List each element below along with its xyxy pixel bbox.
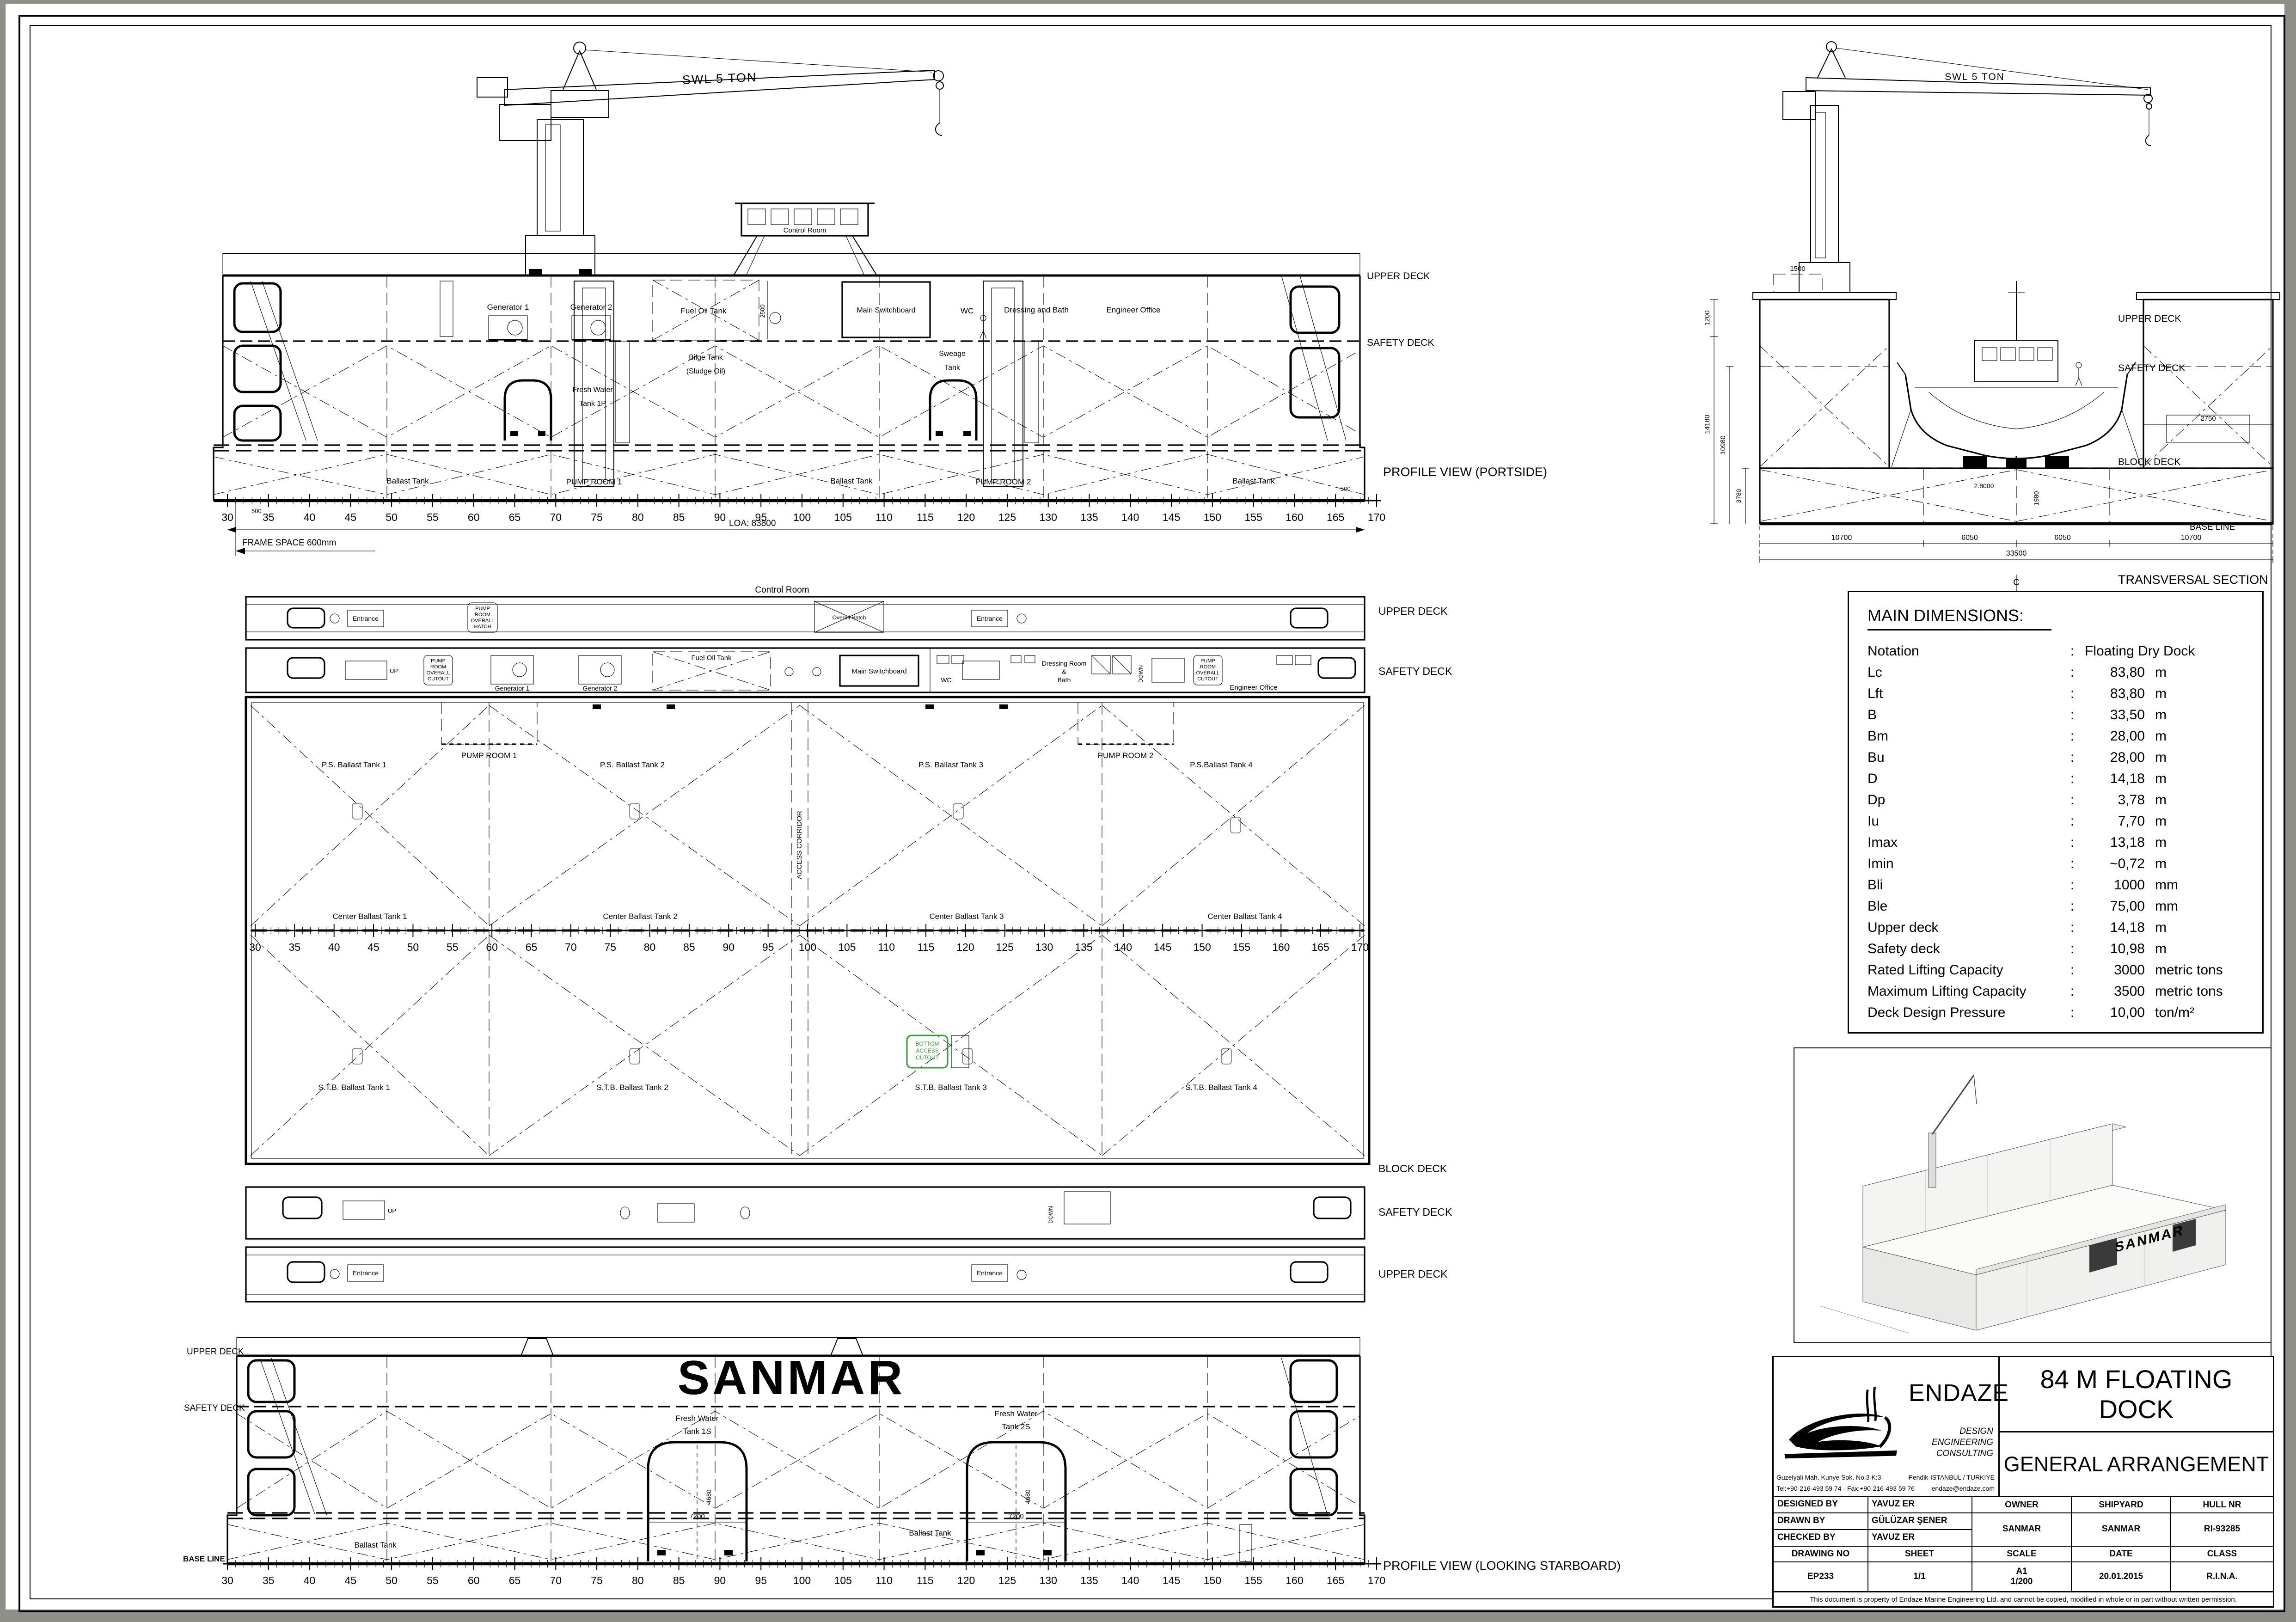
upper-deck-strip-bottom xyxy=(246,1247,1365,1302)
plan-safety-deck-top-label: SAFETY DECK xyxy=(1378,665,1452,677)
svg-text:165: 165 xyxy=(1311,941,1329,953)
svg-text:30: 30 xyxy=(221,511,233,523)
sweage-tank-label-1: Sweage xyxy=(939,350,966,358)
company-name: ENDAZE xyxy=(1909,1379,1996,1407)
svg-text:80: 80 xyxy=(632,511,644,523)
dim-33500: 33500 xyxy=(2006,550,2027,557)
svg-text:125: 125 xyxy=(998,1574,1016,1586)
class-value: R.I.N.A. xyxy=(2171,1562,2273,1591)
dimension-row: Dp:3,78m xyxy=(1867,790,2244,811)
svg-text:150: 150 xyxy=(1204,511,1221,523)
svg-text:45: 45 xyxy=(367,941,380,953)
control-room-house xyxy=(734,203,877,275)
svg-text:50: 50 xyxy=(386,1574,398,1586)
generator-icons xyxy=(489,316,611,340)
owner-header: OWNER xyxy=(1972,1497,2071,1512)
section-crane-swl-label: SWL 5 TON xyxy=(1945,72,2005,82)
drawing-sheet: SWL 5 TON Control Room Generator 1 Gener… xyxy=(6,4,2284,1610)
svg-text:170: 170 xyxy=(1368,1574,1385,1586)
starboard-frame-ruler: 3035404550556065707580859095100105110115… xyxy=(221,1557,1385,1586)
center-tank-3-label: Center Ballast Tank 3 xyxy=(929,912,1004,921)
drawing-title: GENERAL ARRANGEMENT xyxy=(2000,1432,2273,1496)
hull-outline xyxy=(214,253,1365,501)
sweage-tank-label-2: Tank xyxy=(944,364,961,372)
dimension-row: Iu:7,70m xyxy=(1867,811,2244,832)
up-label-2: UP xyxy=(388,1207,396,1214)
dim-4680-2: 4680 xyxy=(1024,1489,1031,1504)
plan-main-switchboard-label: Main Switchboard xyxy=(851,667,906,675)
drawing-no-header: DRAWING NO xyxy=(1774,1547,1867,1561)
ballast-tank-label-2: Ballast Tank xyxy=(830,477,873,485)
main-dimensions-rows: Notation:Floating Dry DockLc:83,80mLft:8… xyxy=(1867,641,2244,1023)
svg-text:165: 165 xyxy=(1327,1574,1344,1586)
svg-text:170: 170 xyxy=(1368,511,1385,523)
svg-text:55: 55 xyxy=(447,941,459,953)
svg-text:CUTOUT: CUTOUT xyxy=(1197,676,1218,682)
ps-tank-1-label: P.S. Ballast Tank 1 xyxy=(322,760,386,769)
entrance-label-1: Entrance xyxy=(353,615,379,622)
center-tank-2-label: Center Ballast Tank 2 xyxy=(603,912,677,921)
address-line-4: endaze@endaze.com xyxy=(1889,1485,1995,1492)
loa-label: LOA: 83800 xyxy=(729,519,776,528)
svg-text:155: 155 xyxy=(1233,941,1250,953)
svg-text:140: 140 xyxy=(1121,511,1139,523)
main-dimensions-title: MAIN DIMENSIONS: xyxy=(1867,606,2051,630)
svg-text:130: 130 xyxy=(1035,941,1053,953)
svg-text:135: 135 xyxy=(1080,1574,1098,1586)
date-header: DATE xyxy=(2072,1547,2170,1561)
svg-text:40: 40 xyxy=(328,941,340,953)
centerline-symbol-c: C xyxy=(2013,578,2020,588)
sanmar-brand-text: SANMAR xyxy=(678,1351,905,1405)
svg-text:65: 65 xyxy=(526,941,538,953)
bilge-tank-label-2: (Sludge Oil) xyxy=(686,367,725,375)
svg-text:60: 60 xyxy=(468,1574,480,1586)
starboard-base-line-label: BASE LINE xyxy=(183,1555,225,1563)
dimension-row: Imax:13,18m xyxy=(1867,832,2244,853)
entrance-label-2: Entrance xyxy=(977,615,1003,622)
svg-text:170: 170 xyxy=(1351,941,1369,953)
sheet-value: 1/1 xyxy=(1867,1562,1971,1591)
address-line-3: Pendik-ISTANBUL / TURKIYE xyxy=(1889,1474,1995,1481)
ballast-tank-label-3: Ballast Tank xyxy=(1232,477,1275,485)
svg-text:100: 100 xyxy=(793,511,811,523)
profile-portside-view: SWL 5 TON Control Room Generator 1 Gener… xyxy=(181,22,1522,577)
svg-text:120: 120 xyxy=(956,941,974,953)
dimension-row: Maximum Lifting Capacity:3500metric tons xyxy=(1867,981,2244,1002)
scale-header: SCALE xyxy=(1972,1547,2071,1561)
dimension-row: Deck Design Pressure:10,00ton/m² xyxy=(1867,1002,2244,1023)
svg-text:CUTOUT: CUTOUT xyxy=(428,676,449,682)
svg-text:150: 150 xyxy=(1204,1574,1221,1586)
stb-tank-4-label: S.T.B. Ballast Tank 4 xyxy=(1185,1083,1257,1092)
svg-text:65: 65 xyxy=(509,1574,521,1586)
dim-10700-right: 10700 xyxy=(2181,534,2202,542)
drawing-no-value: EP233 xyxy=(1774,1562,1867,1591)
stb-tank-2-label: S.T.B. Ballast Tank 2 xyxy=(596,1083,668,1092)
dressing-bath-label: Dressing and Bath xyxy=(1004,306,1069,314)
fresh-water-1p-label-2: Tank 1P xyxy=(579,400,606,408)
svg-text:160: 160 xyxy=(1286,511,1303,523)
entrance-label-4: Entrance xyxy=(977,1269,1003,1277)
dim-2800: 2.8000 xyxy=(1974,482,1994,490)
upper-deck-label: UPPER DECK xyxy=(1367,271,1430,282)
drawn-by-header: DRAWN BY xyxy=(1777,1516,1825,1526)
svg-text:130: 130 xyxy=(1040,511,1057,523)
dim-7200-2: 7200 xyxy=(1008,1512,1023,1520)
svg-text:125: 125 xyxy=(998,511,1016,523)
ballast-tank-label-1: Ballast Tank xyxy=(386,477,429,485)
svg-text:90: 90 xyxy=(714,511,726,523)
dim-1980: 1980 xyxy=(2033,491,2040,505)
title-block: ENDAZE DESIGN ENGINEERING CONSULTING Guz… xyxy=(1772,1356,2274,1608)
ballast-tank-label-a: Ballast Tank xyxy=(354,1541,397,1549)
access-corridor-label: ACCESS CORRIDOR xyxy=(796,811,803,879)
svg-text:145: 145 xyxy=(1163,1574,1180,1586)
tagline-engineering: ENGINEERING xyxy=(1912,1438,1993,1448)
dim-6050-right: 6050 xyxy=(2054,534,2071,542)
transversal-caption: TRANSVERSAL SECTION xyxy=(2118,573,2268,587)
svg-text:115: 115 xyxy=(918,941,935,953)
svg-text:35: 35 xyxy=(263,511,275,523)
ps-tank-2-label: P.S. Ballast Tank 2 xyxy=(600,760,665,769)
fw-tank-2s-label-1: Fresh Water xyxy=(995,1409,1038,1418)
dimension-row: B:33,50m xyxy=(1867,704,2244,726)
ps-tank-4-label: P.S.Ballast Tank 4 xyxy=(1190,760,1252,769)
designed-by-header: DESIGNED BY xyxy=(1777,1499,1838,1509)
dimension-row: Upper deck:14,18m xyxy=(1867,917,2244,938)
svg-text:75: 75 xyxy=(591,511,603,523)
dimension-row: Bli:1000mm xyxy=(1867,875,2244,896)
dimension-row: Imin:~0,72m xyxy=(1867,853,2244,875)
scale-value: A1 1/200 xyxy=(1972,1562,2071,1591)
wc-label: WC xyxy=(961,306,974,315)
dim-1500: 1500 xyxy=(1790,265,1805,273)
stb-tank-3-label: S.T.B. Ballast Tank 3 xyxy=(915,1083,987,1092)
down-label-2: DOWN xyxy=(1047,1206,1054,1224)
svg-text:60: 60 xyxy=(468,511,480,523)
dimension-row: Notation:Floating Dry Dock xyxy=(1867,641,2244,662)
stair-tower-left xyxy=(234,281,318,441)
svg-text:100: 100 xyxy=(793,1574,811,1586)
generator-1-label: Generator 1 xyxy=(487,303,529,312)
dim-500-left: 500 xyxy=(251,508,262,514)
svg-text:110: 110 xyxy=(876,1574,893,1586)
dimension-row: Rated Lifting Capacity:3000metric tons xyxy=(1867,960,2244,981)
svg-text:100: 100 xyxy=(799,941,816,953)
safety-deck-label: SAFETY DECK xyxy=(1367,337,1434,348)
plan-fuel-oil-label: Fuel Oil Tank xyxy=(691,654,732,662)
disclaimer-text: This document is property of Endaze Mari… xyxy=(1774,1592,2273,1606)
main-dimensions-table: MAIN DIMENSIONS: Notation:Floating Dry D… xyxy=(1848,591,2264,1034)
svg-text:95: 95 xyxy=(762,941,774,953)
checked-by-value: YAVUZ ER xyxy=(1872,1532,1915,1542)
generator-2-label: Generator 2 xyxy=(570,303,612,312)
plan-control-room-label: Control Room xyxy=(755,585,809,595)
starboard-upper-deck-label: UPPER DECK xyxy=(187,1347,244,1357)
pump-room-shafts xyxy=(440,281,1039,487)
svg-text:35: 35 xyxy=(289,941,301,953)
upper-deck-strip-top xyxy=(246,597,1365,640)
stair-tower-right xyxy=(1281,275,1346,441)
plan-upper-deck-bottom-label: UPPER DECK xyxy=(1378,1268,1448,1280)
main-switchboard-label: Main Switchboard xyxy=(857,306,915,314)
svg-text:85: 85 xyxy=(673,1574,685,1586)
svg-text:135: 135 xyxy=(1080,511,1098,523)
dim-2750: 2750 xyxy=(2200,415,2216,422)
endaze-logo xyxy=(1776,1371,1910,1473)
frame-ruler: 3035404550556065707580859095100105110115… xyxy=(221,494,1385,523)
svg-text:70: 70 xyxy=(550,511,562,523)
svg-text:75: 75 xyxy=(604,941,616,953)
svg-text:30: 30 xyxy=(249,941,261,953)
address-line-1: Guzelyali Mah. Kunye Sok. No:3 K:3 xyxy=(1776,1474,1881,1481)
svg-text:105: 105 xyxy=(838,941,856,953)
dimension-row: Lft:83,80m xyxy=(1867,683,2244,704)
project-title: 84 M FLOATING DOCK xyxy=(2000,1357,2273,1431)
svg-text:125: 125 xyxy=(996,941,1014,953)
svg-text:CUTOUT: CUTOUT xyxy=(916,1054,939,1061)
fw-tank-1s-label-1: Fresh Water xyxy=(676,1414,719,1423)
pump-room-1-label: PUMP ROOM 1 xyxy=(566,477,622,486)
svg-text:95: 95 xyxy=(755,1574,767,1586)
svg-text:120: 120 xyxy=(957,1574,975,1586)
section-dimensions xyxy=(1710,300,2273,601)
pump-room-2-label: PUMP ROOM 2 xyxy=(975,477,1031,486)
pump-room-cutout-note-1: PUMP ROOM OVERALL CUTOUT xyxy=(427,658,450,682)
svg-text:70: 70 xyxy=(550,1574,562,1586)
owner-value: SANMAR xyxy=(1972,1513,2071,1545)
svg-text:155: 155 xyxy=(1244,1574,1262,1586)
sheet-header: SHEET xyxy=(1867,1547,1971,1561)
svg-text:ROOM: ROOM xyxy=(430,664,446,670)
dimension-row: D:14,18m xyxy=(1867,768,2244,790)
starboard-safety-deck-label: SAFETY DECK xyxy=(184,1403,245,1413)
profile-starboard-view: SANMAR Fresh Water Tank 1S Fresh Water T… xyxy=(181,1316,1545,1612)
safety-deck-strip-bottom xyxy=(246,1187,1365,1239)
dimension-row: Safety deck:10,98m xyxy=(1867,938,2244,960)
svg-text:120: 120 xyxy=(957,511,975,523)
svg-text:110: 110 xyxy=(876,511,893,523)
down-label-1: DOWN xyxy=(1138,665,1144,683)
section-base-line-label: BASE LINE xyxy=(2190,522,2235,532)
dimension-row: Ble:75,00mm xyxy=(1867,896,2244,917)
svg-text:PUMP: PUMP xyxy=(431,658,446,664)
dimension-row: Lc:83,80m xyxy=(1867,662,2244,683)
svg-text:55: 55 xyxy=(427,1574,439,1586)
center-tank-4-label: Center Ballast Tank 4 xyxy=(1207,912,1282,921)
svg-text:PUMP: PUMP xyxy=(1200,658,1215,664)
svg-text:85: 85 xyxy=(673,511,685,523)
dressing-room-label-2: & xyxy=(1062,668,1066,675)
dim-7200-1: 7200 xyxy=(689,1512,704,1520)
svg-text:160: 160 xyxy=(1272,941,1290,953)
svg-text:155: 155 xyxy=(1244,511,1262,523)
svg-text:OVERALL: OVERALL xyxy=(427,670,450,676)
date-value: 20.01.2015 xyxy=(2072,1562,2170,1591)
engineer-office-label: Engineer Office xyxy=(1107,306,1161,314)
section-safety-deck-label: SAFETY DECK xyxy=(2118,363,2185,373)
svg-text:110: 110 xyxy=(878,941,895,953)
crane-swl-label: SWL 5 TON xyxy=(682,70,757,87)
svg-text:ROOM: ROOM xyxy=(475,612,490,618)
svg-text:140: 140 xyxy=(1114,941,1132,953)
svg-text:45: 45 xyxy=(345,1574,357,1586)
up-label-1: UP xyxy=(390,667,398,674)
dressing-room-label-3: Bath xyxy=(1058,676,1071,684)
drawn-by-value: GÜLÜZAR ŞENER xyxy=(1872,1516,1947,1526)
hull-nr-value: RI-93285 xyxy=(2171,1513,2273,1545)
svg-text:35: 35 xyxy=(263,1574,275,1586)
svg-text:BOTTOM: BOTTOM xyxy=(915,1041,939,1047)
plan-pump-room-2-label: PUMP ROOM 2 xyxy=(1098,751,1154,760)
svg-text:115: 115 xyxy=(917,1574,934,1586)
section-upper-deck-label: UPPER DECK xyxy=(2118,313,2181,324)
ballast-tank-label-b: Ballast Tank xyxy=(909,1529,951,1537)
fuel-oil-tank-label: Fuel Oil Tank xyxy=(681,306,727,315)
frame-space-label: FRAME SPACE 600mm xyxy=(242,538,336,548)
dressing-room-label-1: Dressing Room xyxy=(1042,660,1086,667)
svg-text:145: 145 xyxy=(1163,511,1180,523)
svg-text:135: 135 xyxy=(1075,941,1092,953)
ps-tank-3-label: P.S. Ballast Tank 3 xyxy=(918,760,983,769)
svg-text:90: 90 xyxy=(722,941,735,953)
loa-dimension xyxy=(227,527,1365,533)
hull-nr-header: HULL NR xyxy=(2171,1497,2273,1512)
svg-text:65: 65 xyxy=(509,511,521,523)
plan-wc-label: WC xyxy=(941,676,951,684)
dim-10980: 10980 xyxy=(1719,435,1727,455)
svg-text:75: 75 xyxy=(591,1574,603,1586)
control-room-label: Control Room xyxy=(784,226,827,234)
overall-hatch-label: Overall Hatch xyxy=(833,614,866,621)
dim-500-right: 500 xyxy=(1341,485,1351,492)
dimension-row: Bm:28,00m xyxy=(1867,726,2244,747)
pump-room-hatch-note: PUMP ROOM OVERALL HATCH xyxy=(471,606,495,630)
svg-text:105: 105 xyxy=(834,1574,852,1586)
shipyard-value: SANMAR xyxy=(2072,1513,2170,1545)
svg-text:90: 90 xyxy=(714,1574,726,1586)
profile-starboard-caption: PROFILE VIEW (LOOKING STARBOARD) xyxy=(1383,1559,1621,1573)
stb-tank-1-label: S.T.B. Ballast Tank 1 xyxy=(318,1083,390,1092)
dim-14180: 14180 xyxy=(1703,415,1711,434)
svg-text:80: 80 xyxy=(644,941,656,953)
svg-text:85: 85 xyxy=(683,941,695,953)
svg-text:OVERALL: OVERALL xyxy=(471,618,495,624)
dimension-row: Bu:28,00m xyxy=(1867,747,2244,768)
fresh-water-1p-label-1: Fresh Water xyxy=(572,386,613,394)
profile-portside-caption: PROFILE VIEW (PORTSIDE) xyxy=(1383,465,1547,479)
bottom-access-cutout: BOTTOM ACCESS CUTOUT xyxy=(907,1035,948,1068)
deck-plans-view: Control Room Entrance Entrance Overall H… xyxy=(214,586,1452,1316)
svg-text:70: 70 xyxy=(565,941,577,953)
svg-text:OVERALL: OVERALL xyxy=(1196,670,1220,676)
class-header: CLASS xyxy=(2171,1547,2273,1561)
perspective-view: SANMAR xyxy=(1794,1047,2272,1343)
svg-text:PUMP: PUMP xyxy=(475,606,490,612)
transversal-section-view: SWL 5 TON UPPER DECK SAFETY DECK BLO xyxy=(1688,22,2289,605)
plan-generator-2-label: Generator 2 xyxy=(583,685,618,692)
dim-1200: 1200 xyxy=(1703,310,1711,325)
svg-text:80: 80 xyxy=(632,1574,644,1586)
svg-text:50: 50 xyxy=(386,511,398,523)
svg-text:145: 145 xyxy=(1154,941,1171,953)
plan-engineer-office-label: Engineer Office xyxy=(1230,684,1277,692)
shipyard-header: SHIPYARD xyxy=(2072,1497,2170,1512)
plan-generator-1-label: Generator 1 xyxy=(495,685,530,692)
svg-text:105: 105 xyxy=(834,511,852,523)
plan-safety-deck-bottom-label: SAFETY DECK xyxy=(1378,1206,1452,1218)
svg-text:ROOM: ROOM xyxy=(1200,664,1216,670)
entrance-label-3: Entrance xyxy=(353,1269,379,1277)
pump-room-cutout-note-2: PUMP ROOM OVERALL CUTOUT xyxy=(1196,658,1220,682)
section-block-deck-label: BLOCK DECK xyxy=(2118,457,2180,467)
plan-upper-deck-top-label: UPPER DECK xyxy=(1378,605,1448,617)
svg-text:130: 130 xyxy=(1040,1574,1057,1586)
dim-10700-left: 10700 xyxy=(1831,534,1852,542)
plan-frame-ruler: 3035404550556065707580859095100105110115… xyxy=(249,924,1369,953)
svg-text:30: 30 xyxy=(221,1574,233,1586)
fw-tank-1s-label-2: Tank 1S xyxy=(683,1427,711,1436)
plan-pump-room-1-label: PUMP ROOM 1 xyxy=(461,751,517,760)
svg-text:165: 165 xyxy=(1327,511,1344,523)
svg-text:115: 115 xyxy=(917,511,934,523)
tug-on-blocks xyxy=(1892,281,2141,468)
bilge-tank-label-1: Bilge Tank xyxy=(689,354,723,361)
designed-by-value: YAVUZ ER xyxy=(1872,1499,1915,1509)
tagline-design: DESIGN xyxy=(1912,1426,1993,1437)
svg-text:40: 40 xyxy=(304,1574,316,1586)
plan-block-deck-label: BLOCK DECK xyxy=(1378,1163,1447,1175)
fw-tank-2s-label-2: Tank 2S xyxy=(1002,1422,1030,1431)
svg-text:40: 40 xyxy=(304,511,316,523)
dim-2500: 2500 xyxy=(759,305,766,318)
dim-6050-left: 6050 xyxy=(1961,534,1978,542)
center-tank-1-label: Center Ballast Tank 1 xyxy=(332,912,407,921)
svg-text:160: 160 xyxy=(1286,1574,1303,1586)
svg-text:ACCESS: ACCESS xyxy=(916,1047,938,1054)
svg-text:60: 60 xyxy=(486,941,498,953)
checked-by-header: CHECKED BY xyxy=(1777,1532,1836,1542)
svg-text:55: 55 xyxy=(427,511,439,523)
svg-text:HATCH: HATCH xyxy=(474,624,491,630)
dim-3780: 3780 xyxy=(1735,489,1742,503)
svg-text:45: 45 xyxy=(345,511,357,523)
dim-4680-1: 4680 xyxy=(705,1489,712,1504)
tagline-consulting: CONSULTING xyxy=(1912,1449,1993,1459)
svg-text:150: 150 xyxy=(1193,941,1211,953)
svg-text:140: 140 xyxy=(1121,1574,1139,1586)
svg-text:50: 50 xyxy=(407,941,419,953)
